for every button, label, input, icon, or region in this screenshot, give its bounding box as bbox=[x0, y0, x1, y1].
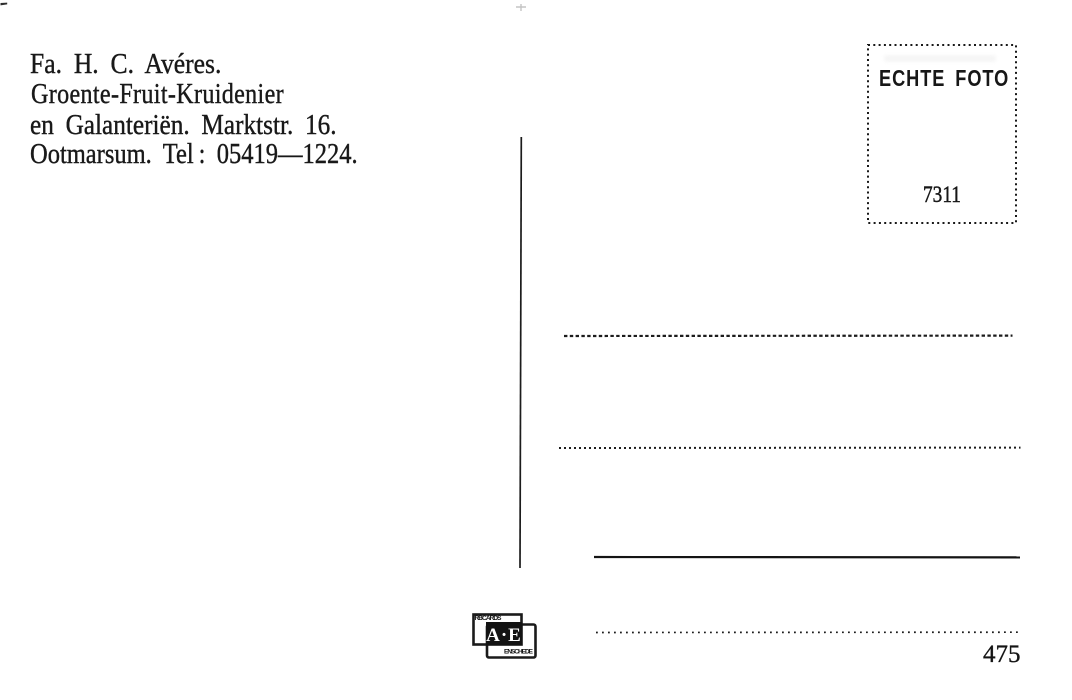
svg-text:A·E: A·E bbox=[486, 625, 522, 646]
svg-text:RBCARDS: RBCARDS bbox=[475, 615, 503, 622]
svg-text:ENSCHEDE: ENSCHEDE bbox=[504, 649, 534, 656]
